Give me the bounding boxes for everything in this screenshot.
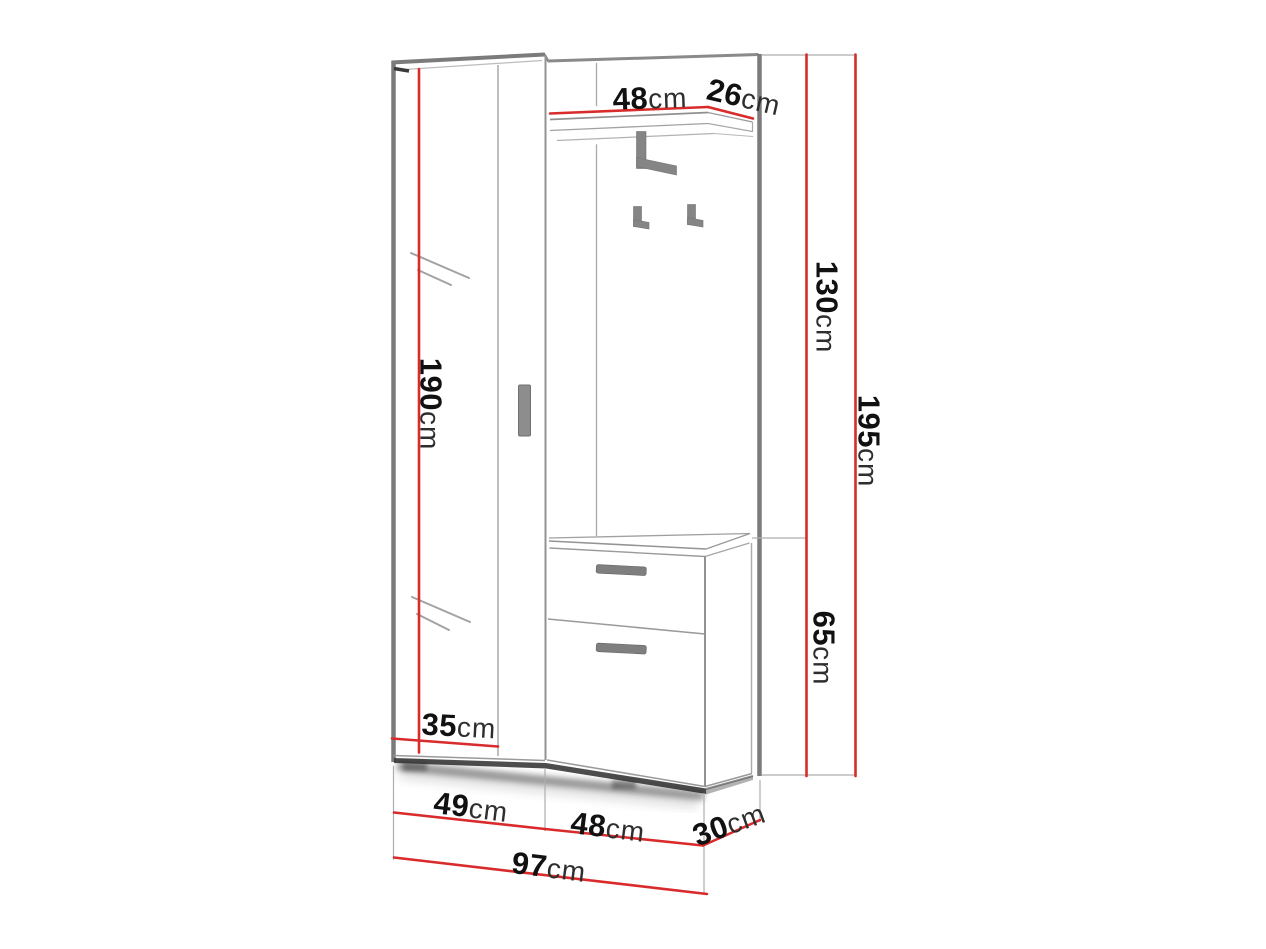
door-width-value: 35 xyxy=(421,707,458,744)
dimension-label-shoe-cabinet-height: 65cm xyxy=(809,611,840,686)
drawer-handle-bottom xyxy=(596,643,646,654)
small-hook-left-icon xyxy=(634,207,650,230)
total-width-unit: cm xyxy=(545,852,588,888)
small-hook-right-icon xyxy=(688,205,704,228)
dimension-label-total-height: 195cm xyxy=(854,395,885,488)
right-section-width-unit: cm xyxy=(604,812,647,848)
shelf-width-unit: cm xyxy=(648,82,688,114)
dimension-label-shelf-width: 48cm xyxy=(612,81,688,115)
dimension-label-mirror-door-height: 190cm xyxy=(416,358,447,451)
dimension-label-hook-panel-height: 130cm xyxy=(812,261,843,354)
drawer-handle-top xyxy=(596,565,646,576)
shelf-width-value: 48 xyxy=(612,81,649,117)
total-height-value: 195 xyxy=(852,395,887,448)
coat-hooks xyxy=(634,132,704,230)
hook-panel-height-unit: cm xyxy=(811,314,842,353)
door-handle xyxy=(519,385,531,436)
door-width-unit: cm xyxy=(456,711,497,744)
shoe-cabinet-height-unit: cm xyxy=(808,646,839,685)
total-width-value: 97 xyxy=(510,845,549,884)
wardrobe-dimension-diagram: 48cm 26cm 130cm 195cm 190cm 65cm 35cm 49… xyxy=(0,0,1266,949)
top-tick-mark xyxy=(394,69,409,72)
left-section-width-unit: cm xyxy=(467,792,510,828)
left-section-width-value: 49 xyxy=(432,785,471,824)
wardrobe-line-drawing xyxy=(0,0,1266,949)
flap-divider xyxy=(548,619,705,634)
right-section-width-value: 48 xyxy=(569,805,608,844)
mirror-door-height-value: 190 xyxy=(414,358,449,411)
total-height-unit: cm xyxy=(853,448,884,487)
shoe-cabinet-height-value: 65 xyxy=(807,611,842,646)
mirror-door-height-unit: cm xyxy=(415,411,446,450)
shoe-cabinet xyxy=(547,534,752,788)
dimension-label-door-width: 35cm xyxy=(421,709,497,744)
hook-panel-height-value: 130 xyxy=(810,261,845,314)
